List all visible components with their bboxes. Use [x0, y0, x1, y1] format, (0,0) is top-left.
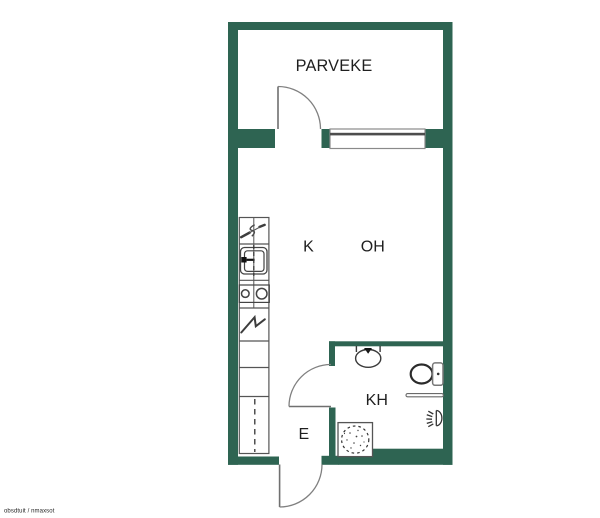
svg-text:OH: OH: [361, 239, 385, 256]
svg-text:PARVEKE: PARVEKE: [296, 57, 373, 75]
svg-text:obsdtuit / nmaxsot: obsdtuit / nmaxsot: [4, 509, 55, 515]
svg-text:E: E: [298, 426, 309, 443]
svg-text:K: K: [303, 239, 314, 256]
svg-text:KH: KH: [366, 392, 388, 409]
